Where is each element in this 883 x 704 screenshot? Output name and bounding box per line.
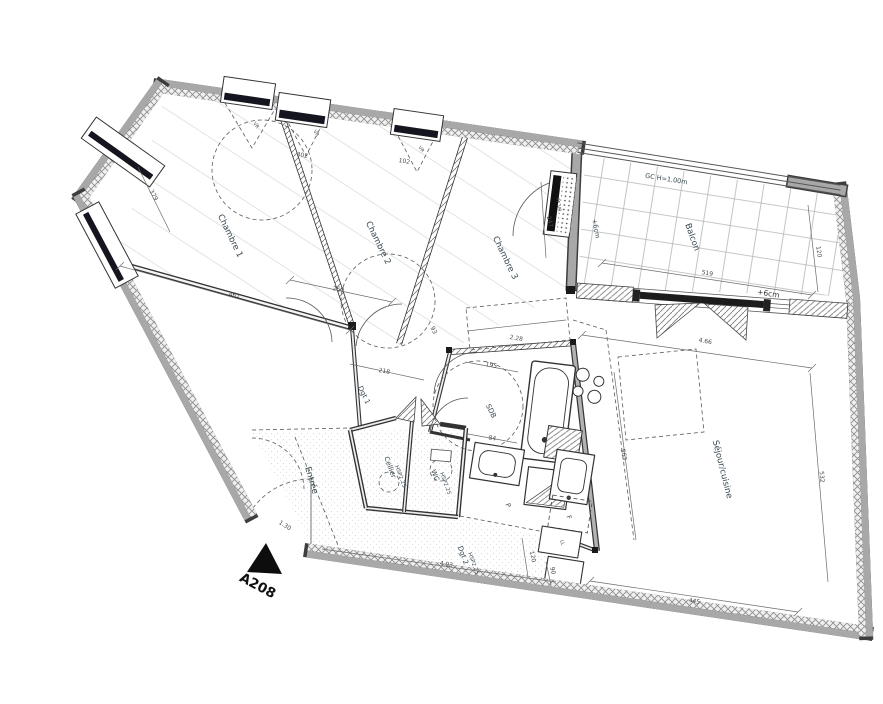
dim-sdb-top: 195 — [485, 361, 498, 370]
dim-kitchen-length: 563 — [619, 448, 628, 461]
room-label-sdb: SDB — [484, 403, 498, 420]
wc-cistern — [431, 449, 452, 462]
window-opening-mark-right — [705, 304, 748, 340]
sejour-furniture — [618, 349, 704, 440]
annotation-closet: P — [503, 502, 512, 508]
north-triangle — [247, 543, 282, 574]
unit-marker: A208 — [237, 543, 282, 602]
floor-plan-svg: Chambre 1 Chambre 2 Chambre 3 Balcon Séj… — [0, 0, 883, 704]
window-opening-mark-left — [655, 303, 700, 338]
unit-label: A208 — [237, 570, 279, 602]
dim-sejour-top: 4.66 — [698, 337, 713, 346]
floor-plan-page: Chambre 1 Chambre 2 Chambre 3 Balcon Séj… — [0, 0, 883, 704]
kitchen-sink — [549, 449, 594, 504]
dim-right-wall: 532 — [818, 471, 826, 483]
dim-corridor: 218 — [378, 367, 391, 376]
annotation-fridge: F — [564, 514, 573, 520]
washbasin — [469, 442, 524, 485]
dim-entrance-door: 1.30 — [277, 519, 292, 532]
room-label-sejour-cuisine: Séjour/cuisine — [710, 439, 735, 500]
dim-basin: 84 — [488, 434, 497, 442]
kitchen-counter-edge — [606, 330, 634, 540]
dim-ch3-closet: 2.28 — [509, 334, 524, 343]
dim-ch1-width: 461 — [228, 291, 241, 300]
floor-textures — [116, 92, 846, 588]
